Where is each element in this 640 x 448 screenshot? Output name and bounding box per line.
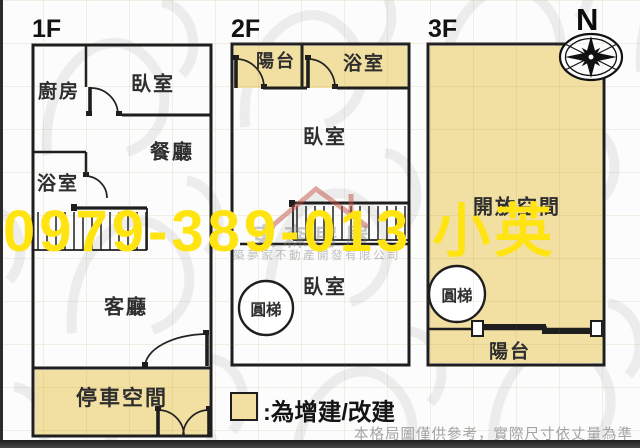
room-label-bath-2f: 浴室 bbox=[343, 49, 385, 76]
floorplan-image: 1F 2F 3F 廚房 臥室 餐廳 浴室 客廳 停車空間 陽台 浴室 臥室 臥室… bbox=[0, 0, 640, 448]
room-label-kitchen-1f: 廚房 bbox=[38, 77, 80, 104]
floor-label-3f: 3F bbox=[428, 15, 457, 44]
room-label-bedroom-1f: 臥室 bbox=[131, 68, 175, 97]
left-edge-bar bbox=[0, 0, 3, 448]
room-label-spiral-stair-2f: 圓梯 bbox=[250, 298, 281, 320]
floor-label-2f: 2F bbox=[231, 15, 260, 44]
floor-label-1f: 1F bbox=[32, 15, 61, 44]
room-label-balcony-2f: 陽台 bbox=[256, 47, 296, 73]
room-label-balcony-3f: 陽台 bbox=[489, 337, 531, 364]
phone-watermark-text: 0979-389-013 小英 bbox=[3, 184, 556, 268]
room-label-bedroom-upper-2f: 臥室 bbox=[303, 121, 347, 150]
room-label-bedroom-lower-2f: 臥室 bbox=[303, 271, 347, 300]
room-label-dining-1f: 餐廳 bbox=[150, 136, 194, 165]
compass-rose-icon bbox=[560, 34, 622, 80]
room-label-living-1f: 客廳 bbox=[104, 291, 148, 320]
room-label-spiral-stair-3f: 圓梯 bbox=[441, 284, 472, 306]
legend-highlight-swatch bbox=[230, 392, 258, 421]
room-label-parking-1f: 停車空間 bbox=[76, 382, 168, 412]
legend-label: :為增建/改建 bbox=[263, 393, 395, 427]
bottom-edge-bar bbox=[0, 440, 640, 448]
compass-north-label: N bbox=[576, 2, 598, 38]
